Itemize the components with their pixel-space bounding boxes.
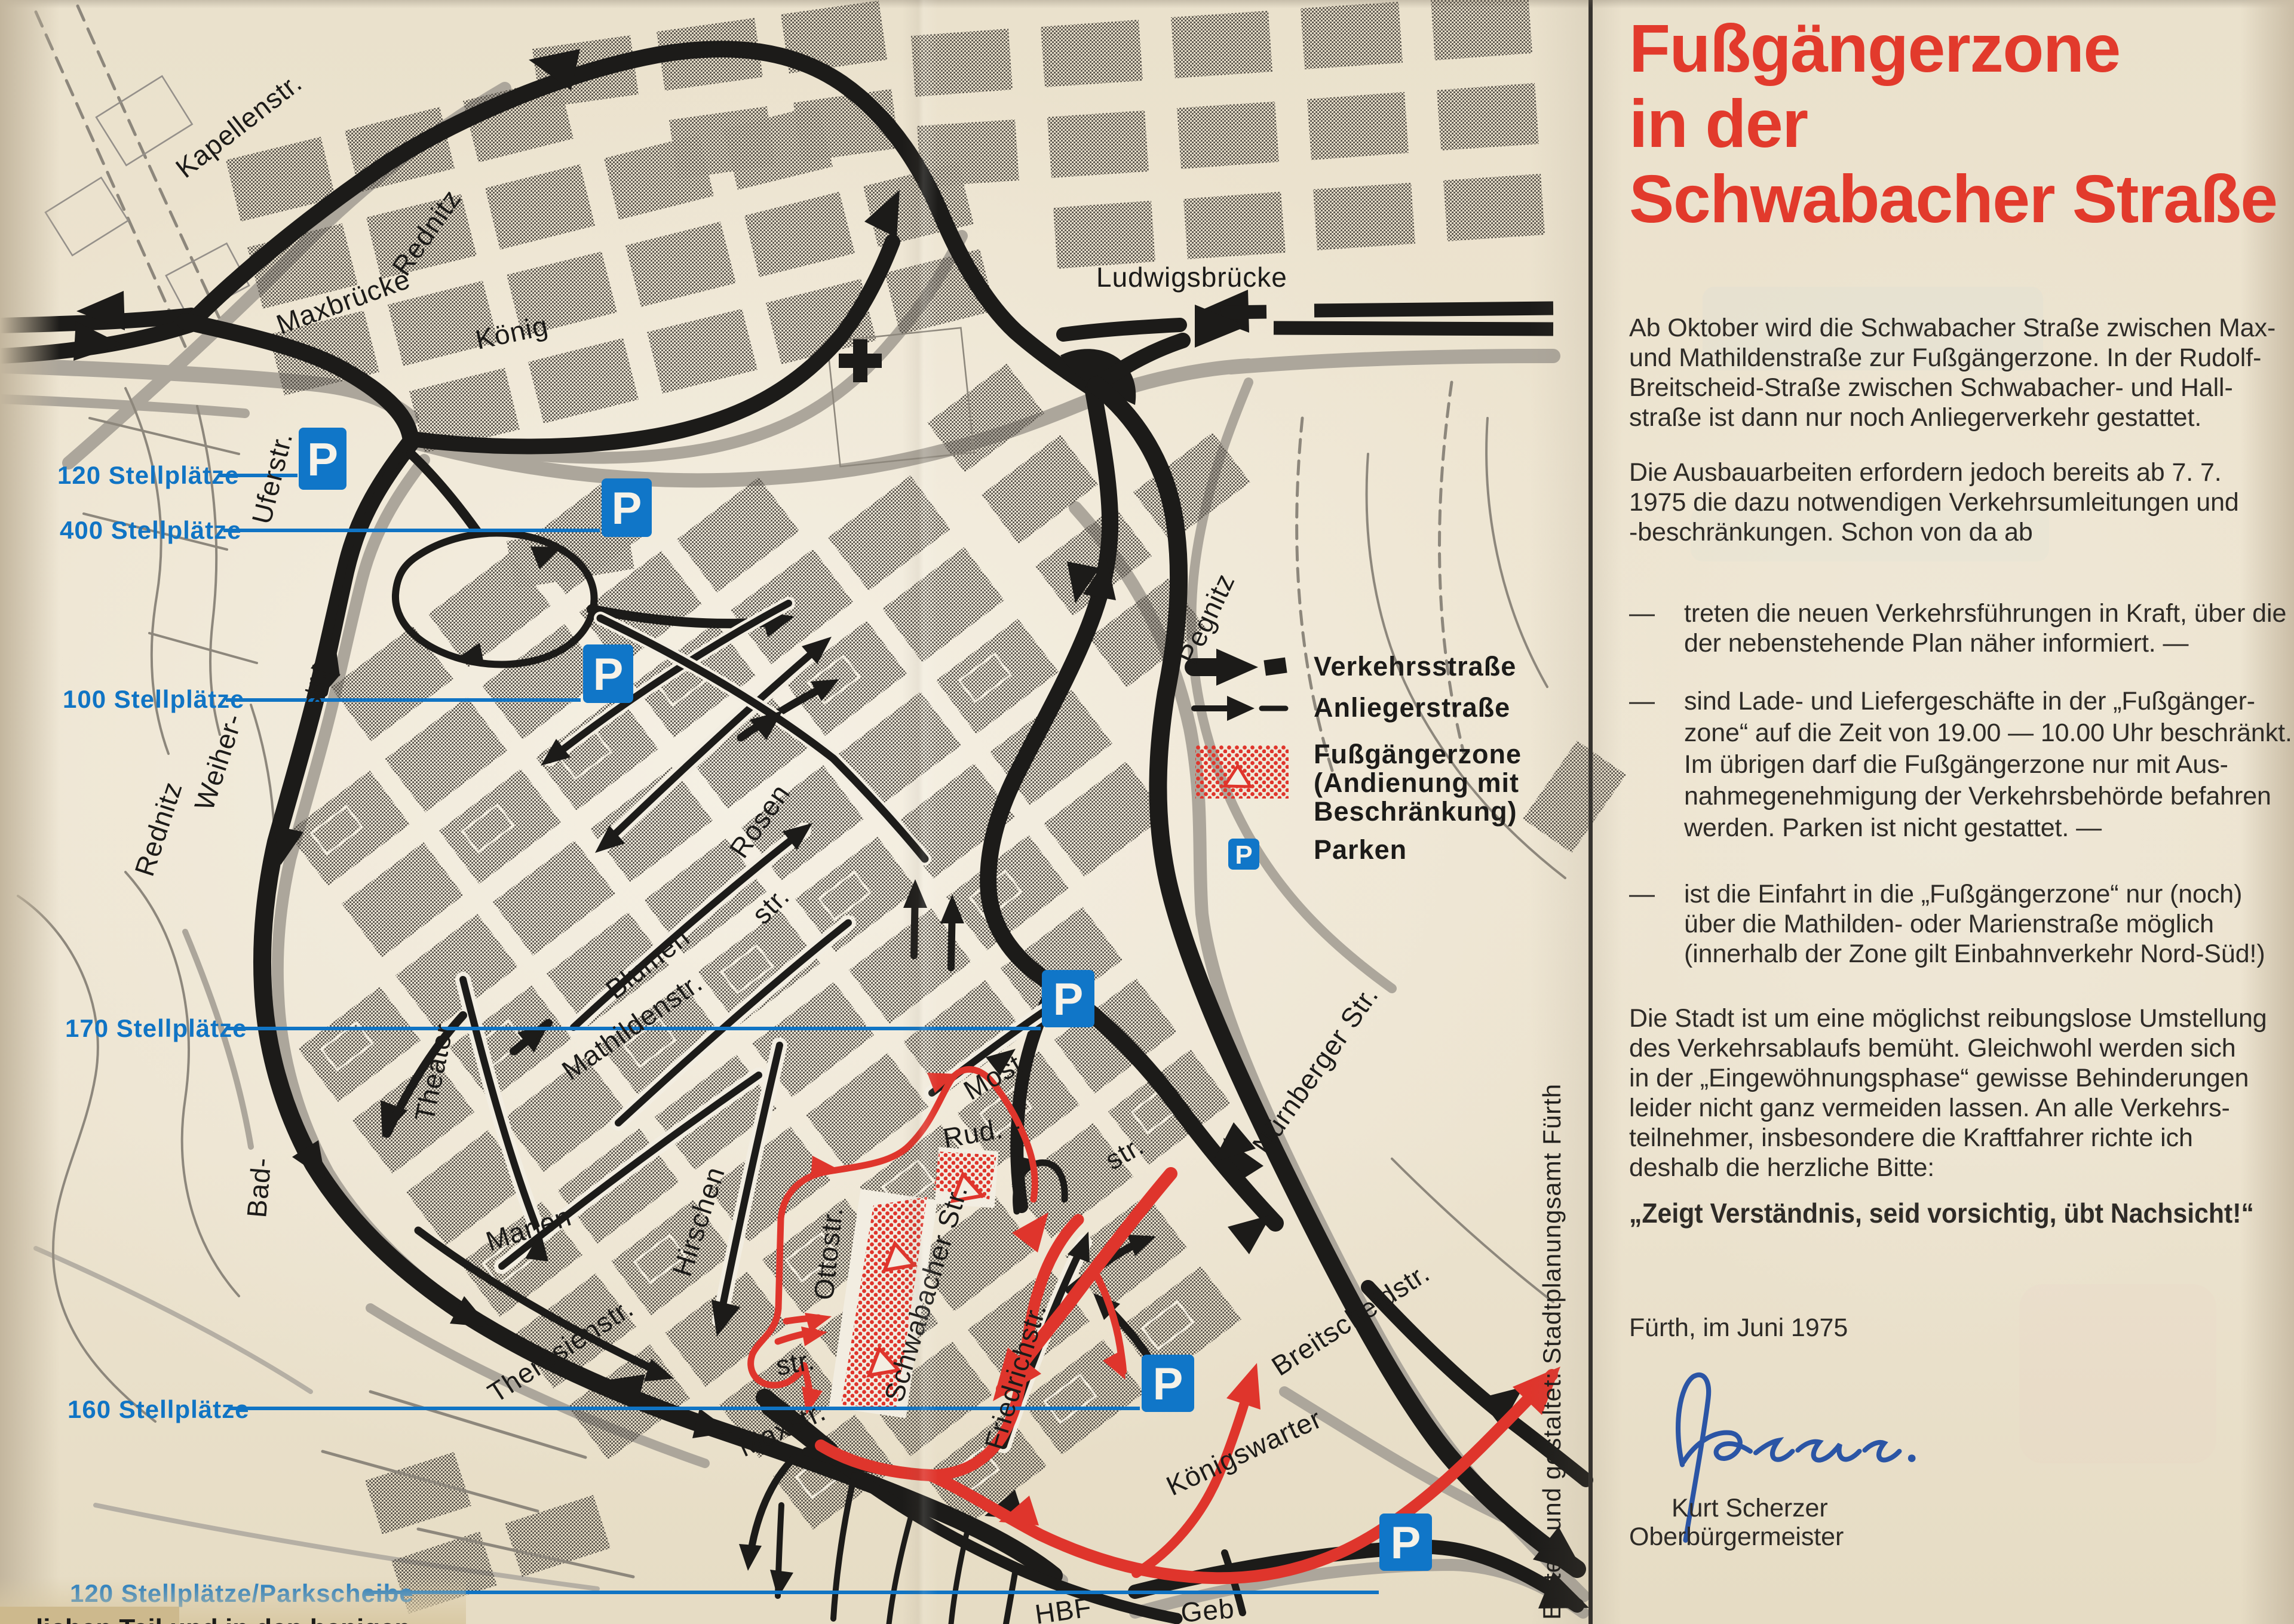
svg-text:160 Stellplätze: 160 Stellplätze	[68, 1395, 249, 1423]
svg-text:170 Stellplätze: 170 Stellplätze	[65, 1014, 247, 1042]
svg-text:Weiher-: Weiher-	[188, 710, 249, 814]
svg-text:Fußgängerzone: Fußgängerzone	[1314, 739, 1522, 769]
svg-text:P: P	[612, 483, 642, 534]
svg-text:Bad-: Bad-	[241, 1156, 277, 1219]
svg-text:Parken: Parken	[1314, 834, 1407, 865]
svg-text:Ottostr.: Ottostr.	[808, 1205, 848, 1301]
svg-text:P: P	[593, 649, 624, 700]
svg-text:120 Stellplätze: 120 Stellplätze	[57, 461, 239, 489]
svg-text:Nürnberger Str.: Nürnberger Str.	[1246, 980, 1385, 1159]
svg-text:P: P	[307, 433, 338, 486]
svg-text:P: P	[1153, 1359, 1183, 1410]
svg-text:Verkehrsstraße: Verkehrsstraße	[1314, 651, 1516, 681]
svg-text:P: P	[1235, 840, 1252, 870]
svg-text:P: P	[1053, 974, 1084, 1025]
svg-text:100 Stellplätze: 100 Stellplätze	[63, 685, 244, 713]
svg-text:Uferstr.: Uferstr.	[246, 429, 298, 527]
svg-text:Ludwigsbrücke: Ludwigsbrücke	[1096, 262, 1287, 293]
svg-text:HBF: HBF	[1033, 1591, 1093, 1624]
svg-text:400 Stellplätze: 400 Stellplätze	[60, 516, 241, 544]
svg-text:(Andienung mit: (Andienung mit	[1314, 768, 1519, 798]
svg-text:Geb: Geb	[1179, 1592, 1235, 1624]
svg-text:Beschränkung): Beschränkung)	[1314, 796, 1517, 827]
svg-text:P: P	[1391, 1518, 1421, 1568]
svg-text:Rednitz: Rednitz	[128, 778, 188, 880]
svg-text:Anliegerstraße: Anliegerstraße	[1314, 692, 1510, 723]
